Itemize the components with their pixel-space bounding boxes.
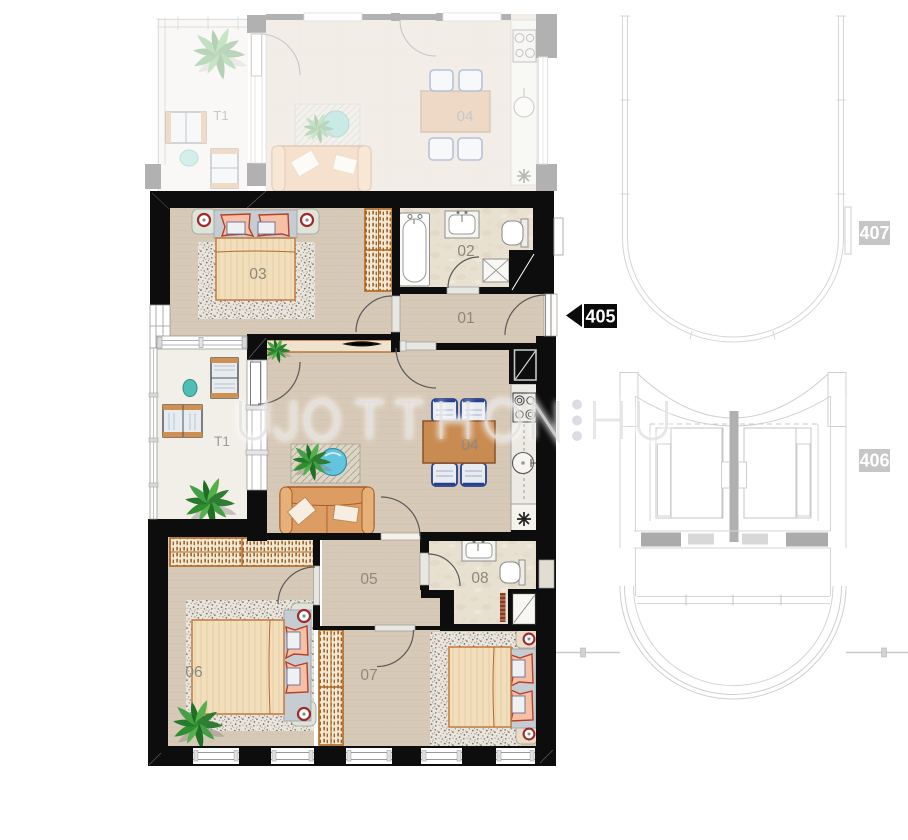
svg-text:01: 01 — [457, 310, 474, 327]
svg-text:406: 406 — [859, 451, 889, 471]
svg-text:06: 06 — [185, 664, 202, 681]
svg-text:407: 407 — [859, 223, 889, 243]
svg-text:05: 05 — [360, 571, 377, 588]
svg-text:04: 04 — [457, 108, 474, 125]
svg-text:405: 405 — [585, 307, 615, 327]
svg-text:03: 03 — [249, 266, 266, 283]
svg-text:07: 07 — [360, 667, 377, 684]
svg-text:02: 02 — [457, 243, 474, 260]
svg-text:08: 08 — [471, 570, 488, 587]
svg-text:T1: T1 — [214, 434, 230, 449]
svg-text:04: 04 — [461, 437, 479, 454]
svg-text:T1: T1 — [213, 108, 228, 123]
